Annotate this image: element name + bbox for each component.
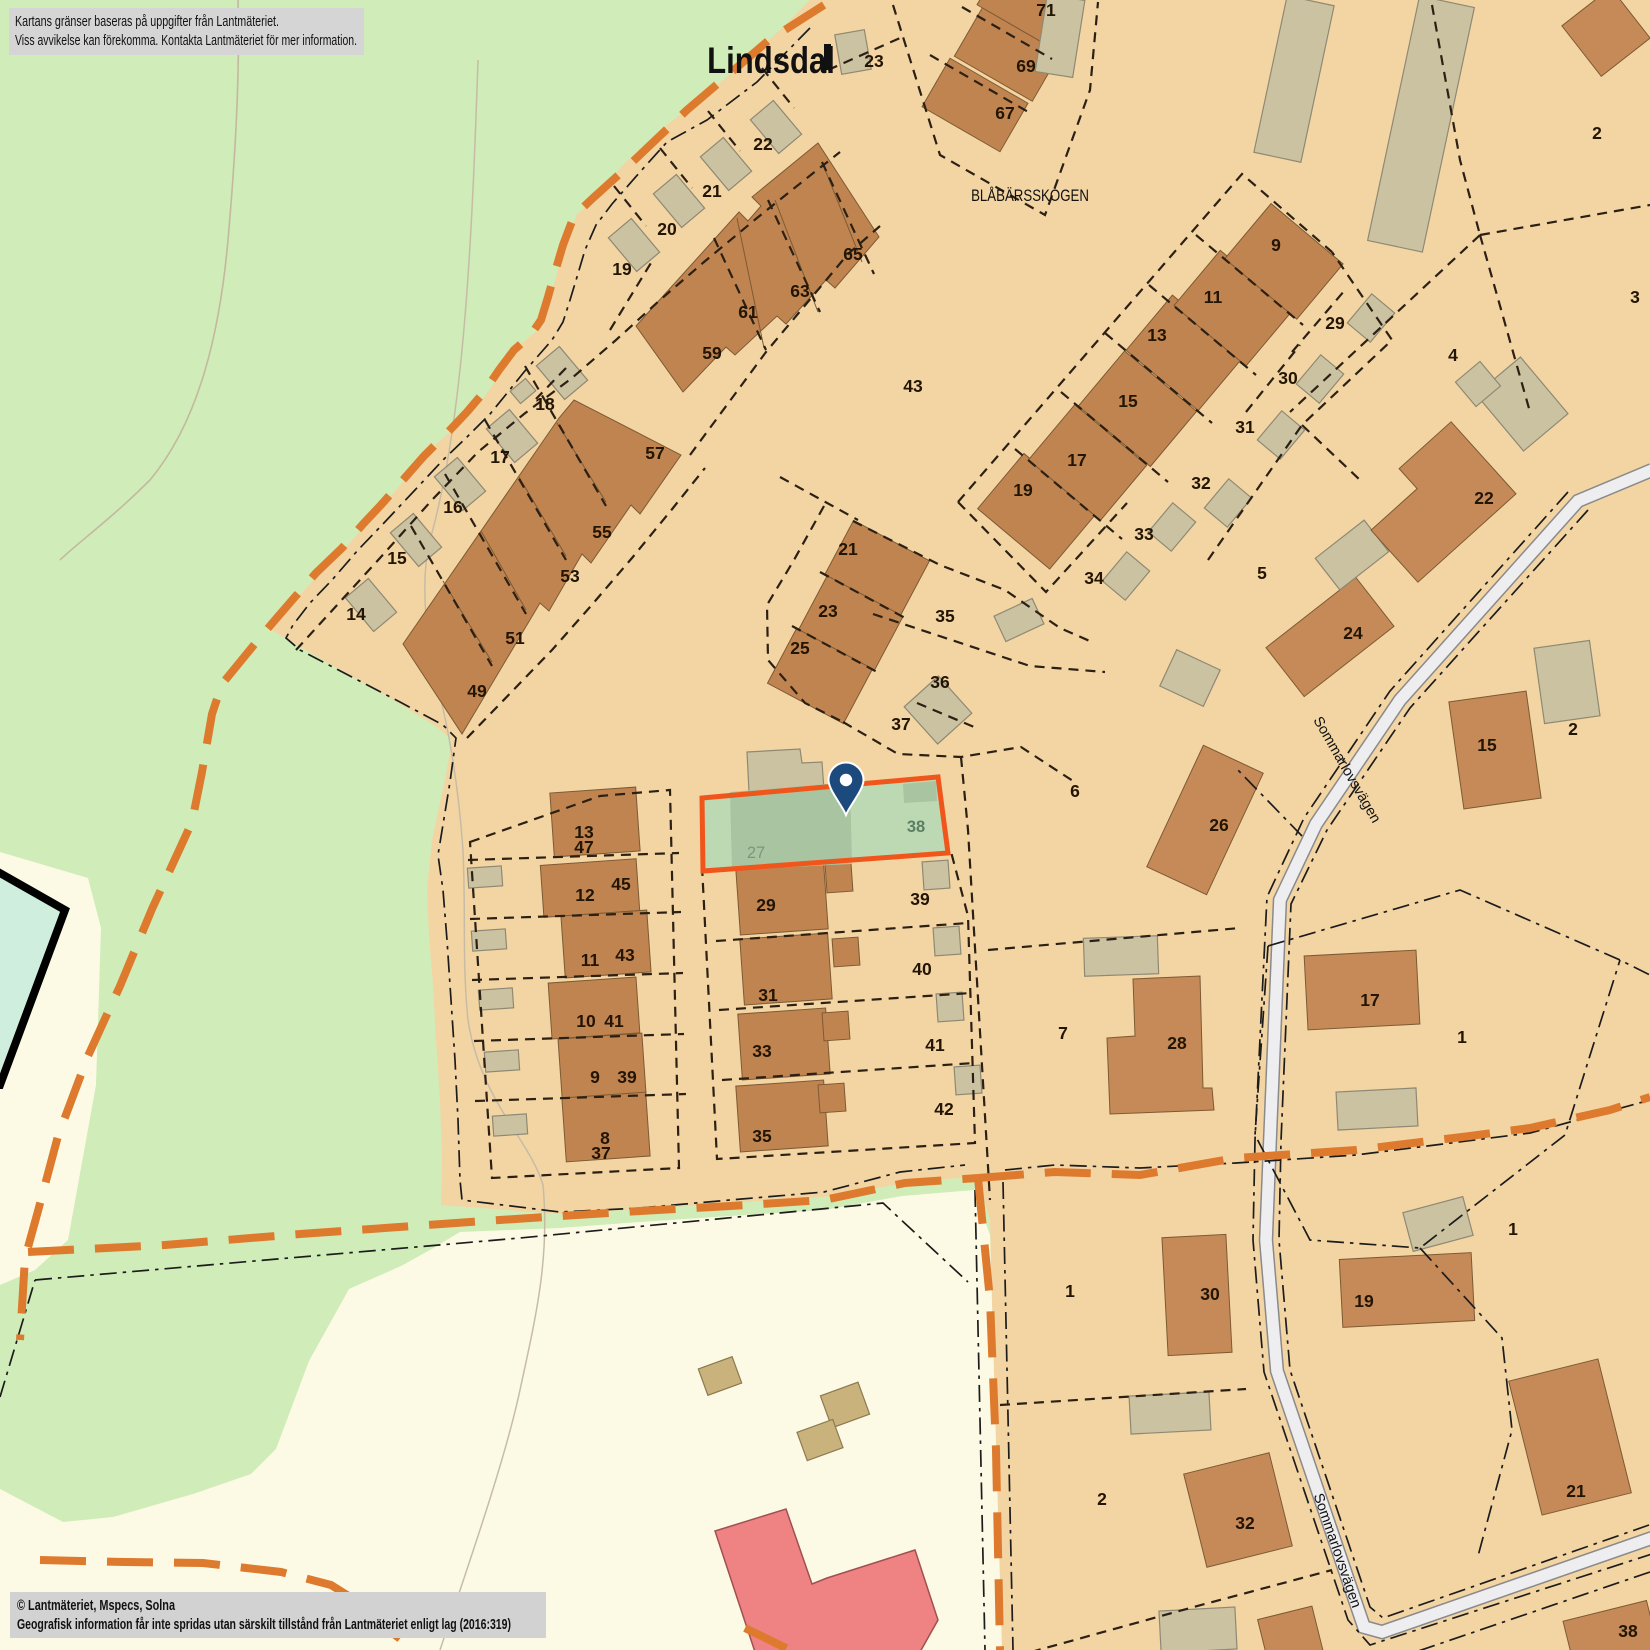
svg-text:Viss avvikelse kan förekomma.: Viss avvikelse kan förekomma. Kontakta L… [15,33,357,49]
svg-text:17: 17 [1067,450,1086,470]
svg-text:65: 65 [843,244,863,264]
svg-text:43: 43 [615,945,635,965]
svg-text:13: 13 [1147,325,1167,345]
svg-text:15: 15 [1477,735,1497,755]
svg-text:39: 39 [910,889,930,909]
svg-text:43: 43 [903,376,923,396]
svg-text:29: 29 [756,895,776,915]
svg-text:30: 30 [1278,368,1298,388]
svg-text:22: 22 [753,134,773,154]
svg-text:17: 17 [490,447,509,467]
svg-text:20: 20 [657,219,677,239]
svg-text:59: 59 [702,343,722,363]
svg-text:53: 53 [560,566,580,586]
svg-text:45: 45 [611,874,631,894]
svg-text:16: 16 [443,497,463,517]
svg-text:32: 32 [1235,1513,1255,1533]
svg-text:23: 23 [864,51,884,71]
svg-text:19: 19 [612,259,632,279]
svg-text:30: 30 [1200,1284,1220,1304]
svg-text:10: 10 [576,1011,596,1031]
svg-text:23: 23 [818,601,838,621]
svg-text:42: 42 [934,1099,954,1119]
svg-text:40: 40 [912,959,932,979]
svg-text:35: 35 [752,1126,772,1146]
svg-text:33: 33 [1134,524,1154,544]
svg-text:© Lantmäteriet, Mspecs, Solna: © Lantmäteriet, Mspecs, Solna [17,1598,176,1614]
svg-text:14: 14 [346,604,366,624]
svg-text:41: 41 [925,1035,945,1055]
svg-text:21: 21 [838,539,858,559]
svg-text:22: 22 [1474,488,1494,508]
svg-text:37: 37 [891,714,910,734]
svg-text:Lindsdal: Lindsdal [707,41,835,82]
svg-text:12: 12 [575,885,595,905]
svg-text:61: 61 [738,302,758,322]
svg-text:37: 37 [591,1143,610,1163]
svg-text:6: 6 [1070,781,1080,801]
svg-text:35: 35 [935,606,955,626]
svg-text:41: 41 [604,1011,624,1031]
svg-text:3: 3 [1630,287,1640,307]
svg-text:1: 1 [1457,1027,1467,1047]
svg-text:18: 18 [535,394,555,414]
svg-text:15: 15 [1118,391,1138,411]
svg-text:17: 17 [1360,990,1379,1010]
svg-text:11: 11 [581,950,600,970]
svg-text:11: 11 [1204,287,1223,307]
svg-text:BLÅBÄRSSKOGEN: BLÅBÄRSSKOGEN [971,187,1089,206]
svg-text:63: 63 [790,281,810,301]
svg-text:4: 4 [1448,345,1458,365]
svg-text:25: 25 [790,638,810,658]
svg-text:34: 34 [1084,568,1104,588]
svg-text:32: 32 [1191,473,1211,493]
svg-text:71: 71 [1036,0,1056,20]
svg-text:36: 36 [930,672,950,692]
svg-text:28: 28 [1167,1033,1187,1053]
svg-text:21: 21 [1566,1481,1586,1501]
svg-text:33: 33 [752,1041,772,1061]
svg-text:Kartans gränser baseras på upp: Kartans gränser baseras på uppgifter frå… [15,14,279,30]
svg-text:15: 15 [387,548,407,568]
svg-text:1: 1 [1065,1281,1075,1301]
svg-text:21: 21 [702,181,722,201]
svg-text:27: 27 [747,844,765,862]
svg-text:67: 67 [995,103,1014,123]
svg-text:31: 31 [758,985,778,1005]
svg-text:69: 69 [1016,56,1036,76]
svg-text:9: 9 [590,1067,600,1087]
svg-text:51: 51 [505,628,525,648]
svg-text:24: 24 [1343,623,1363,643]
svg-text:9: 9 [1271,235,1281,255]
svg-text:26: 26 [1209,815,1229,835]
svg-text:57: 57 [645,443,664,463]
svg-text:29: 29 [1325,313,1345,333]
svg-text:49: 49 [467,681,487,701]
svg-text:5: 5 [1257,563,1267,583]
svg-text:2: 2 [1568,719,1578,739]
svg-text:19: 19 [1013,480,1033,500]
svg-text:38: 38 [1618,1621,1638,1641]
svg-text:2: 2 [1097,1489,1107,1509]
svg-text:55: 55 [592,522,612,542]
svg-text:Geografisk information får int: Geografisk information får inte spridas … [17,1617,511,1633]
svg-text:39: 39 [617,1067,637,1087]
svg-text:19: 19 [1354,1291,1374,1311]
svg-text:31: 31 [1235,417,1255,437]
svg-text:47: 47 [574,837,593,857]
svg-text:38: 38 [907,818,925,836]
svg-text:2: 2 [1592,123,1602,143]
svg-text:1: 1 [1508,1219,1518,1239]
svg-text:7: 7 [1058,1023,1068,1043]
